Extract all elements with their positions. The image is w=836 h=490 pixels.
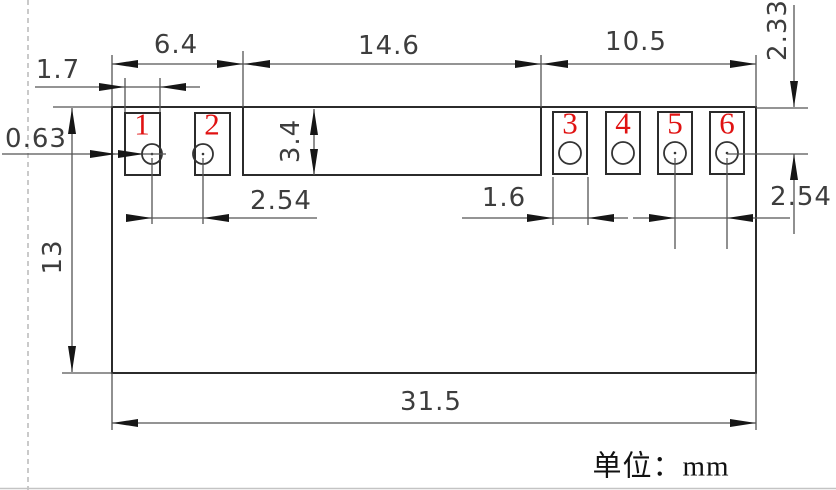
dim-label-3-4: 3.4 — [278, 119, 304, 163]
pad-2-number: 2 — [204, 109, 220, 140]
pad-3-number: 3 — [562, 108, 578, 139]
dim-label-2-54-left: 2.54 — [250, 188, 312, 214]
dim-label-2-54-right: 2.54 — [770, 184, 832, 210]
pad-6-number: 6 — [719, 108, 735, 139]
dim-label-0-63: 0.63 — [5, 126, 67, 152]
dim-label-13: 13 — [40, 239, 66, 274]
dim-label-10-5: 10.5 — [605, 29, 667, 55]
pad-4-number: 4 — [615, 108, 631, 139]
pad-5-number: 5 — [667, 108, 683, 139]
dimension-drawing: 6.4 14.6 10.5 1.7 0.63 3.4 2.33 2.54 1.6… — [0, 0, 836, 490]
unit-note: 单位：mm — [592, 453, 729, 482]
dim-label-1-7: 1.7 — [36, 57, 80, 83]
dim-label-31-5: 31.5 — [400, 389, 462, 415]
body-outline — [112, 107, 756, 373]
dim-label-1-6: 1.6 — [482, 185, 526, 211]
dim-label-2-33: 2.33 — [765, 0, 791, 61]
hole-3 — [559, 142, 581, 164]
dim-label-14-6: 14.6 — [358, 33, 420, 59]
arrowheads — [68, 60, 798, 427]
pad-1-number: 1 — [134, 109, 150, 140]
hole-4 — [612, 142, 634, 164]
dim-label-6-4: 6.4 — [154, 32, 198, 58]
